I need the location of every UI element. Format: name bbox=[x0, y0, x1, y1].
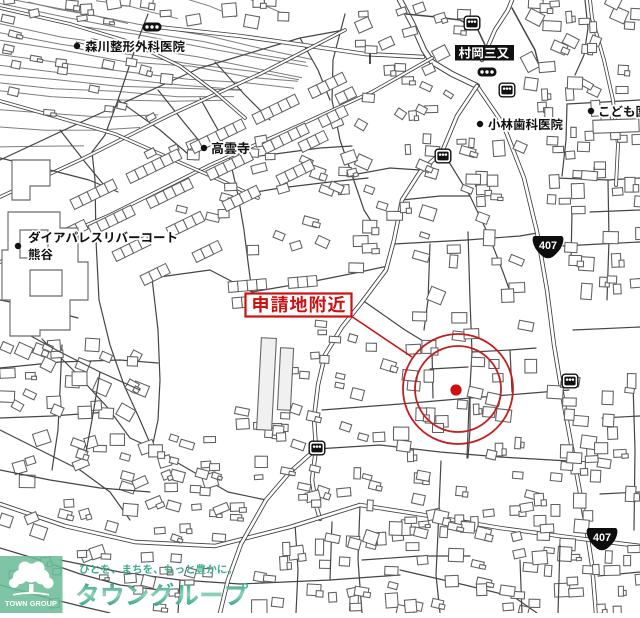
svg-text:407: 407 bbox=[593, 532, 611, 544]
svg-text:TOWN GROUP: TOWN GROUP bbox=[5, 599, 57, 608]
svg-text:407: 407 bbox=[539, 240, 557, 252]
